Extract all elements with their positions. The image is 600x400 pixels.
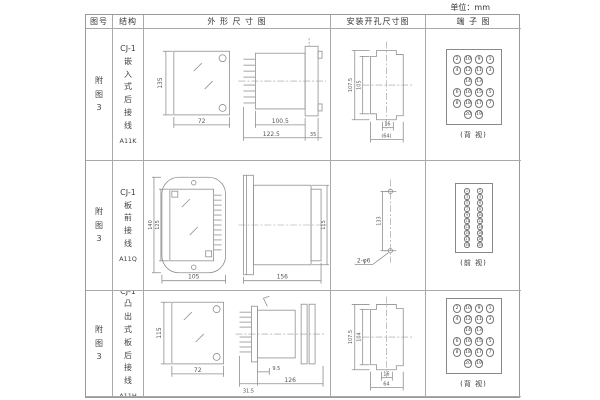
terminal-pin: 13	[464, 224, 470, 230]
terminal-pin: 13	[475, 77, 484, 86]
row2-install-drawing: 133 2-φ6	[331, 163, 425, 288]
row1-struct-desc: 嵌 入 式 后 接 线	[124, 56, 132, 133]
row3-side-view	[239, 296, 323, 387]
dim-label: 105	[188, 274, 200, 281]
dim-label: 107.5	[348, 330, 354, 344]
terminal-pin: 17	[475, 348, 484, 357]
terminal-pin: 5	[464, 200, 470, 206]
row2-struct-title: CJ-1	[120, 187, 136, 200]
terminal-pin	[486, 77, 495, 86]
terminal-pin: 18	[477, 236, 483, 242]
terminal-pin: 7	[464, 206, 470, 212]
terminal-pin	[453, 326, 462, 335]
row2-struct-code: A11Q	[119, 254, 137, 264]
terminal-pin: 16	[477, 230, 483, 236]
header-struct: 结构	[113, 15, 144, 29]
row2-outline-cell: 140 125 105 156 115	[144, 161, 331, 291]
terminal-pin: 5	[486, 337, 495, 346]
terminal-pin: 3	[486, 66, 495, 75]
terminal-pin: 19	[475, 110, 484, 119]
terminal-pin: 9	[475, 304, 484, 313]
terminal-pin: 3	[486, 315, 495, 324]
row1-terminal-cell: 2109141211314136161558181772019 (背 视)	[426, 29, 521, 161]
terminal-pin: 10	[477, 212, 483, 218]
header-outline: 外 形 尺 寸 图	[144, 15, 331, 29]
terminal-pin: 6	[453, 88, 462, 97]
header-terminal: 端 子 图	[426, 15, 521, 29]
dim-label: 31.5	[243, 388, 254, 394]
terminal-pin: 8	[477, 206, 483, 212]
terminal-pin: 13	[475, 326, 484, 335]
dim-label: 125	[155, 220, 161, 229]
terminal-pin	[453, 77, 462, 86]
dim-label: 115	[156, 327, 163, 339]
row3-outline-drawing: 115 72 31.5 9.5 126	[144, 291, 330, 397]
row3-terminal-panel: 2109141211314136161558181772019	[446, 298, 502, 374]
terminal-pin: 14	[477, 224, 483, 230]
row2-side-view	[243, 175, 329, 283]
terminal-pin: 12	[464, 66, 473, 75]
dim-label: 35	[310, 131, 316, 137]
row3-front-view	[161, 302, 224, 377]
row1-terminal-grid: 2109141211314136161558181772019	[452, 54, 496, 120]
row1-install-cell: 107.5 105 16 (64)	[331, 29, 426, 161]
terminal-pin: 2	[453, 304, 462, 313]
row3-fig-number: 附 图 3	[86, 291, 113, 397]
row3-structure: CJ-1 凸 出 式 板 后 接 线 A11H	[113, 291, 144, 397]
dim-label: 133	[376, 216, 382, 225]
dim-label: 64	[383, 381, 389, 387]
terminal-pin: 12	[477, 218, 483, 224]
dim-label: 126	[285, 376, 297, 383]
terminal-pin	[486, 359, 495, 368]
terminal-pin: 11	[464, 218, 470, 224]
row3-install-drawing: 107.5 104 16 64	[331, 291, 425, 397]
terminal-pin: 4	[453, 66, 462, 75]
row1-structure: CJ-1 嵌 入 式 后 接 线 A11K	[113, 29, 144, 161]
terminal-pin: 9	[475, 55, 484, 64]
row2-struct-desc: 板 前 接 线	[124, 200, 132, 251]
spec-table: 图号 结构 外 形 尺 寸 图 安装开孔尺寸图 端 子 图 附 图 3 CJ-1…	[85, 14, 520, 398]
row2-fig-number: 附 图 3	[86, 161, 113, 291]
terminal-pin: 14	[464, 326, 473, 335]
terminal-pin: 15	[475, 88, 484, 97]
row1-cutout-shape	[352, 50, 403, 142]
row3-outline-cell: 115 72 31.5 9.5 126	[144, 291, 331, 397]
row2-terminal-cell: 1234567891011121314151617181920 (前 视)	[426, 161, 521, 291]
terminal-pin: 11	[475, 66, 484, 75]
terminal-pin: 10	[464, 55, 473, 64]
terminal-pin	[486, 110, 495, 119]
terminal-pin: 2	[453, 55, 462, 64]
dim-label: 72	[194, 366, 202, 373]
terminal-pin: 16	[464, 88, 473, 97]
row3-terminal-caption: (背 视)	[460, 379, 487, 389]
header-install: 安装开孔尺寸图	[331, 15, 426, 29]
terminal-pin: 14	[464, 77, 473, 86]
dim-label: 9.5	[272, 365, 280, 371]
terminal-pin: 17	[475, 99, 484, 108]
row1-install-drawing: 107.5 105 16 (64)	[331, 29, 425, 161]
row2-front-view	[152, 177, 226, 283]
row2-terminal-panel: 1234567891011121314151617181920	[455, 183, 493, 253]
dim-label: 105	[357, 80, 363, 89]
terminal-pin: 19	[464, 242, 470, 248]
row1-front-view	[163, 51, 230, 128]
dim-label: 2-φ6	[357, 258, 371, 265]
dim-label: 104	[357, 332, 363, 341]
terminal-pin: 10	[464, 304, 473, 313]
dim-label: 122.5	[263, 130, 280, 137]
row3-install-cell: 107.5 104 16 64	[331, 291, 426, 397]
terminal-pin: 8	[453, 348, 462, 357]
row2-structure: CJ-1 板 前 接 线 A11Q	[113, 161, 144, 291]
terminal-pin: 5	[486, 88, 495, 97]
row3-struct-desc: 凸 出 式 板 后 接 线	[124, 298, 132, 388]
terminal-pin: 15	[464, 230, 470, 236]
dim-label: 16	[383, 371, 389, 377]
dim-label: 140	[148, 220, 154, 229]
terminal-pin	[486, 326, 495, 335]
terminal-pin: 18	[464, 99, 473, 108]
terminal-pin: 20	[477, 242, 483, 248]
dim-label: 156	[277, 274, 289, 281]
dim-label: 100.5	[272, 117, 289, 124]
terminal-pin: 3	[464, 194, 470, 200]
terminal-pin: 8	[453, 99, 462, 108]
row2-install-cell: 133 2-φ6	[331, 161, 426, 291]
row3-terminal-grid: 2109141211314136161558181772019	[452, 303, 496, 369]
row1-terminal-caption: (背 视)	[460, 130, 487, 140]
dim-label: (64)	[381, 133, 391, 139]
row1-fig-number: 附 图 3	[86, 29, 113, 161]
terminal-pin: 4	[477, 194, 483, 200]
dim-label: 135	[157, 77, 164, 89]
terminal-pin: 12	[464, 315, 473, 324]
terminal-pin: 16	[464, 337, 473, 346]
row3-struct-code: A11H	[119, 391, 137, 397]
row2-terminal-grid: 1234567891011121314151617181920	[461, 188, 487, 248]
terminal-pin: 6	[477, 200, 483, 206]
terminal-pin: 1	[486, 304, 495, 313]
row1-side-view	[243, 38, 322, 140]
row3-terminal-cell: 2109141211314136161558181772019 (背 视)	[426, 291, 521, 397]
terminal-pin: 7	[486, 348, 495, 357]
terminal-pin: 4	[453, 315, 462, 324]
row1-outline-cell: 135 72 100.5 122.5 35	[144, 29, 331, 161]
dim-label: 107.5	[348, 78, 354, 92]
row1-struct-title: CJ-1	[120, 43, 136, 56]
row3-struct-title: CJ-1	[120, 291, 136, 298]
row2-outline-drawing: 140 125 105 156 115	[144, 163, 330, 288]
unit-label: 单位：mm	[450, 2, 490, 13]
dim-label: 115	[321, 220, 327, 229]
spec-sheet: 单位：mm 图号 结构 外 形 尺 寸 图 安装开孔尺寸图 端 子 图 附 图 …	[0, 0, 600, 400]
dim-label: 72	[198, 117, 206, 124]
terminal-pin: 20	[464, 359, 473, 368]
terminal-pin	[453, 359, 462, 368]
terminal-pin: 1	[464, 188, 470, 194]
row3-cutout-shape	[352, 304, 403, 390]
row1-outline-drawing: 135 72 100.5 122.5 35	[144, 29, 330, 161]
terminal-pin: 15	[475, 337, 484, 346]
terminal-pin: 1	[486, 55, 495, 64]
terminal-pin: 19	[475, 359, 484, 368]
terminal-pin: 9	[464, 212, 470, 218]
terminal-pin: 7	[486, 99, 495, 108]
row2-terminal-caption: (前 视)	[460, 258, 487, 268]
terminal-pin: 2	[477, 188, 483, 194]
terminal-pin: 6	[453, 337, 462, 346]
header-fig: 图号	[86, 15, 113, 29]
terminal-pin: 18	[464, 348, 473, 357]
terminal-pin: 11	[475, 315, 484, 324]
terminal-pin: 17	[464, 236, 470, 242]
terminal-pin	[453, 110, 462, 119]
terminal-pin: 20	[464, 110, 473, 119]
row1-terminal-panel: 2109141211314136161558181772019	[446, 49, 502, 125]
row1-struct-code: A11K	[120, 136, 137, 146]
dim-label: 16	[384, 121, 390, 127]
